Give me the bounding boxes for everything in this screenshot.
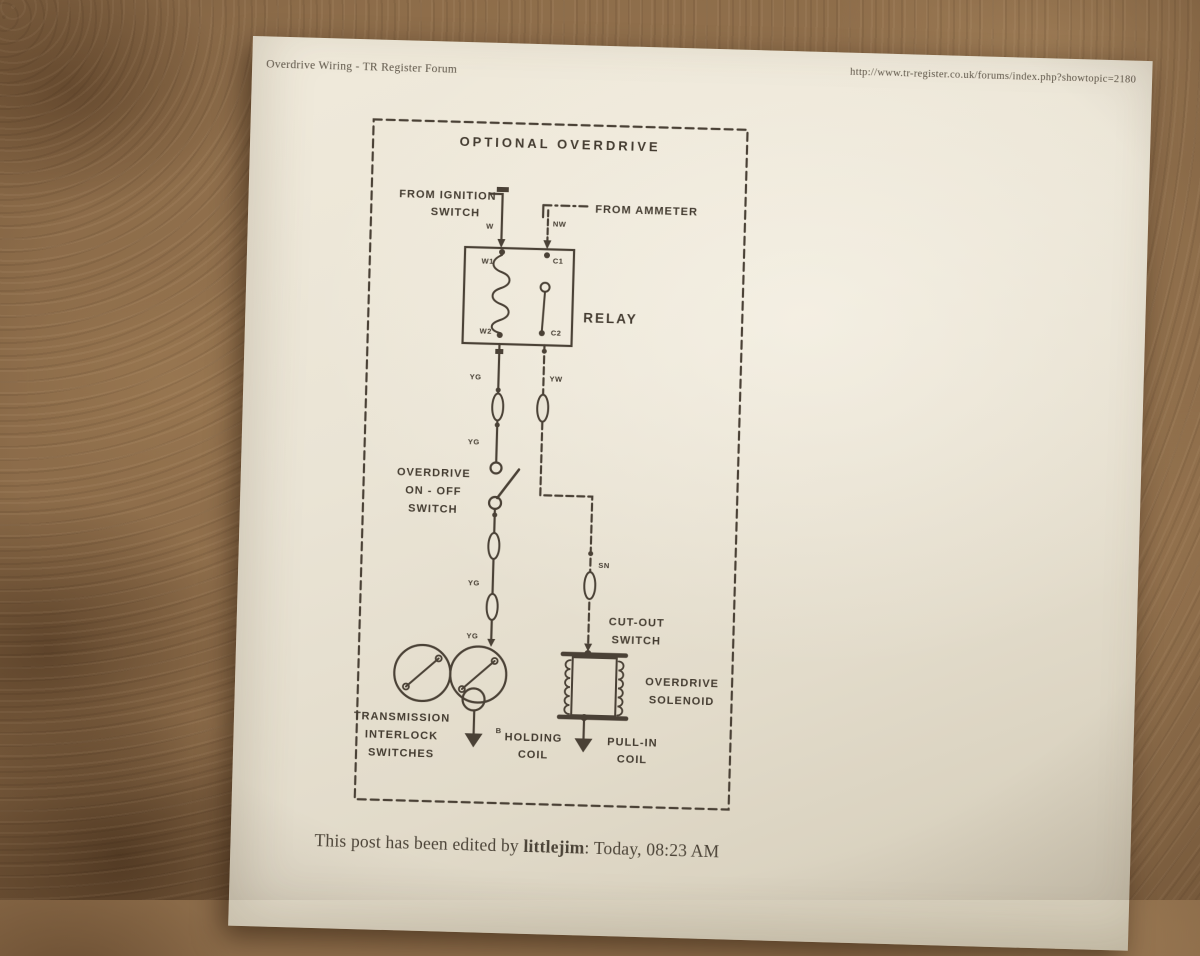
interlock-ground-wire <box>474 710 475 737</box>
solenoid-label-line2: SOLENOID <box>649 694 715 708</box>
ignition-feed-wire: FROM IGNITION SWITCH W <box>398 184 509 248</box>
wire-code-nw: NW <box>553 219 567 228</box>
solenoid-ground-wire <box>583 721 584 742</box>
overdrive-on-off-switch: OVERDRIVE ON - OFF SWITCH <box>396 460 519 518</box>
relay-terminal-w1: W1 <box>481 256 493 265</box>
cutout-label-line1: CUT-OUT <box>609 616 665 630</box>
solenoid-right-coil <box>617 661 624 715</box>
ignition-label-line1: FROM IGNITION <box>399 188 497 203</box>
relay-terminal-w2: W2 <box>479 326 491 335</box>
relay: W1 C1 W2 C2 RELAY <box>463 247 640 348</box>
onoff-label-line2: ON - OFF <box>405 484 462 498</box>
wire-code-w: W <box>486 222 494 231</box>
interlock-label-line2: INTERLOCK <box>365 728 438 742</box>
page-content: Overdrive Wiring - TR Register Forum htt… <box>228 36 1152 951</box>
wire-code-yg-1: YG <box>470 372 482 381</box>
wire-code-yg-2: YG <box>468 437 480 446</box>
holding-coil-label-line1: HOLDING <box>504 731 562 745</box>
wire-code-yg-4: YG <box>466 631 478 640</box>
cutout-label-line2: SWITCH <box>611 634 661 647</box>
bullet-connector <box>486 594 498 620</box>
ignition-label-line2: SWITCH <box>431 206 481 219</box>
bullet-connector <box>537 395 549 422</box>
relay-label: RELAY <box>583 310 638 327</box>
ammeter-label: FROM AMMETER <box>595 204 698 219</box>
wire-switch-to-interlock: YG YG <box>466 508 500 647</box>
pullin-coil-label-line2: COIL <box>617 753 648 766</box>
relay-coil <box>492 255 511 333</box>
solenoid-left-coil <box>564 660 571 714</box>
diagram-title: OPTIONAL OVERDRIVE <box>459 134 660 155</box>
edited-note-username: littlejim <box>523 836 585 858</box>
ground-symbol <box>574 738 592 752</box>
wire-code-sn: SN <box>598 561 610 570</box>
wire-code-yg-3: YG <box>468 578 480 587</box>
wire-code-yw: YW <box>549 374 563 383</box>
bullet-connector <box>492 393 504 420</box>
bullet-connector <box>488 533 500 559</box>
interlock-label-line3: SWITCHES <box>368 746 434 760</box>
pullin-coil-label-line1: PULL-IN <box>607 736 658 749</box>
relay-terminal-c2: C2 <box>551 328 562 337</box>
onoff-label-line1: OVERDRIVE <box>397 466 471 480</box>
wiring-diagram: OPTIONAL OVERDRIVE FROM IGNITION SWITCH … <box>228 36 1152 951</box>
solenoid-label-line1: OVERDRIVE <box>645 676 719 690</box>
onoff-label-line3: SWITCH <box>408 503 458 516</box>
ground-symbol <box>464 733 482 747</box>
relay-contact <box>540 283 549 292</box>
wire-relay-to-solenoid: YW SN CUT-OUT SWITCH <box>530 345 672 654</box>
wire-relay-to-switch: YG YG <box>467 343 505 462</box>
cutout-switch-connector <box>584 572 596 599</box>
interlock-label-line1: TRANSMISSION <box>354 710 451 725</box>
transmission-interlock-switches: TRANSMISSION INTERLOCK SWITCHES B <box>353 643 507 762</box>
relay-terminal-c1: C1 <box>553 256 564 265</box>
b-terminal-label: B <box>496 726 502 735</box>
edited-note-suffix: : Today, 08:23 AM <box>584 838 719 862</box>
holding-coil-label-line2: COIL <box>518 749 549 762</box>
ammeter-feed-wire: FROM AMMETER NW <box>542 202 698 253</box>
overdrive-solenoid: OVERDRIVE SOLENOID HOLDING COIL PULL-IN … <box>504 648 720 768</box>
printed-page: Overdrive Wiring - TR Register Forum htt… <box>228 36 1152 951</box>
